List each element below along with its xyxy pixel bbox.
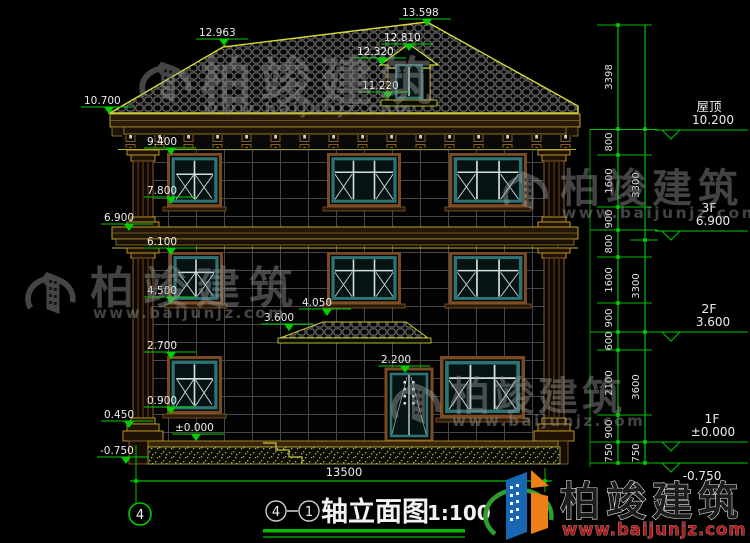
svg-text:2.700: 2.700 [147,340,177,352]
brand-logo: 柏竣建筑 www.baijunjz.com [485,470,746,540]
svg-text:www.baijunjz.com: www.baijunjz.com [93,304,286,322]
title-underline-thick [263,529,465,533]
svg-text:4: 4 [272,505,280,520]
dim-label: 3300 [631,273,642,298]
dim-label: 1600 [604,267,615,292]
eave-bracket-right [566,127,578,136]
svg-text:9.400: 9.400 [147,136,177,148]
svg-text:13.598: 13.598 [402,7,439,19]
svg-text:10.700: 10.700 [84,95,121,107]
svg-text:1: 1 [305,505,313,520]
dim-label: 750 [604,443,615,462]
dim-label: 800 [604,132,615,151]
dentil-row [122,135,572,148]
svg-text:±0.000: ±0.000 [175,422,214,434]
eave-bracket-left [112,127,124,136]
svg-text:7.800: 7.800 [147,185,177,197]
drawing-title: 轴立面图 [321,496,429,528]
svg-text:4: 4 [136,508,144,523]
window-3f-left [169,154,221,205]
svg-text:±0.000: ±0.000 [691,425,735,439]
elevation-drawing: 3398 800 1600 900 800 1600 900 600 2100 … [0,0,750,543]
svg-text:10.200: 10.200 [692,113,734,127]
dim-label: 900 [604,308,615,327]
svg-text:12.963: 12.963 [199,27,236,39]
window-3f-center [329,154,400,205]
brand-logo-tower-orange [531,492,548,534]
floor-band [112,227,578,248]
dim-label: 800 [604,234,615,253]
svg-text:4.050: 4.050 [302,297,332,309]
svg-text:www.baijunjz.com: www.baijunjz.com [562,204,750,222]
dim-label: 3600 [631,374,642,399]
brand-logo-tower-blue [506,472,527,540]
window-2f-center [329,253,400,302]
svg-text:屋顶: 屋顶 [696,99,722,114]
total-width-label: 13500 [326,465,363,479]
svg-text:12.810: 12.810 [384,32,421,44]
svg-text:0.450: 0.450 [104,409,134,421]
ground [148,441,560,464]
dim-label: 600 [604,331,615,350]
svg-text:1F: 1F [704,411,719,426]
svg-text:6.100: 6.100 [147,236,177,248]
svg-text:3.600: 3.600 [696,315,730,329]
svg-text:2.200: 2.200 [381,354,411,366]
dim-label: 750 [631,443,642,462]
eave-cornice [110,114,580,150]
dim-label: 3398 [604,64,615,89]
brand-url: www.baijunjz.com [562,520,747,539]
svg-text:6.900: 6.900 [104,212,134,224]
cad-elevation-sheet: 3398 800 1600 900 800 1600 900 600 2100 … [0,0,750,543]
earth-hatch [148,447,560,464]
svg-text:www.baijunjz.com: www.baijunjz.com [452,412,645,430]
svg-text:0.900: 0.900 [147,395,177,407]
svg-text:www.baijunjz.com: www.baijunjz.com [203,99,414,118]
svg-text:2F: 2F [701,301,716,316]
svg-text:-0.750: -0.750 [100,445,134,457]
window-2f-right [451,253,526,302]
drawing-scale: 1:100 [427,501,491,525]
brand-name: 柏竣建筑 [560,479,744,525]
